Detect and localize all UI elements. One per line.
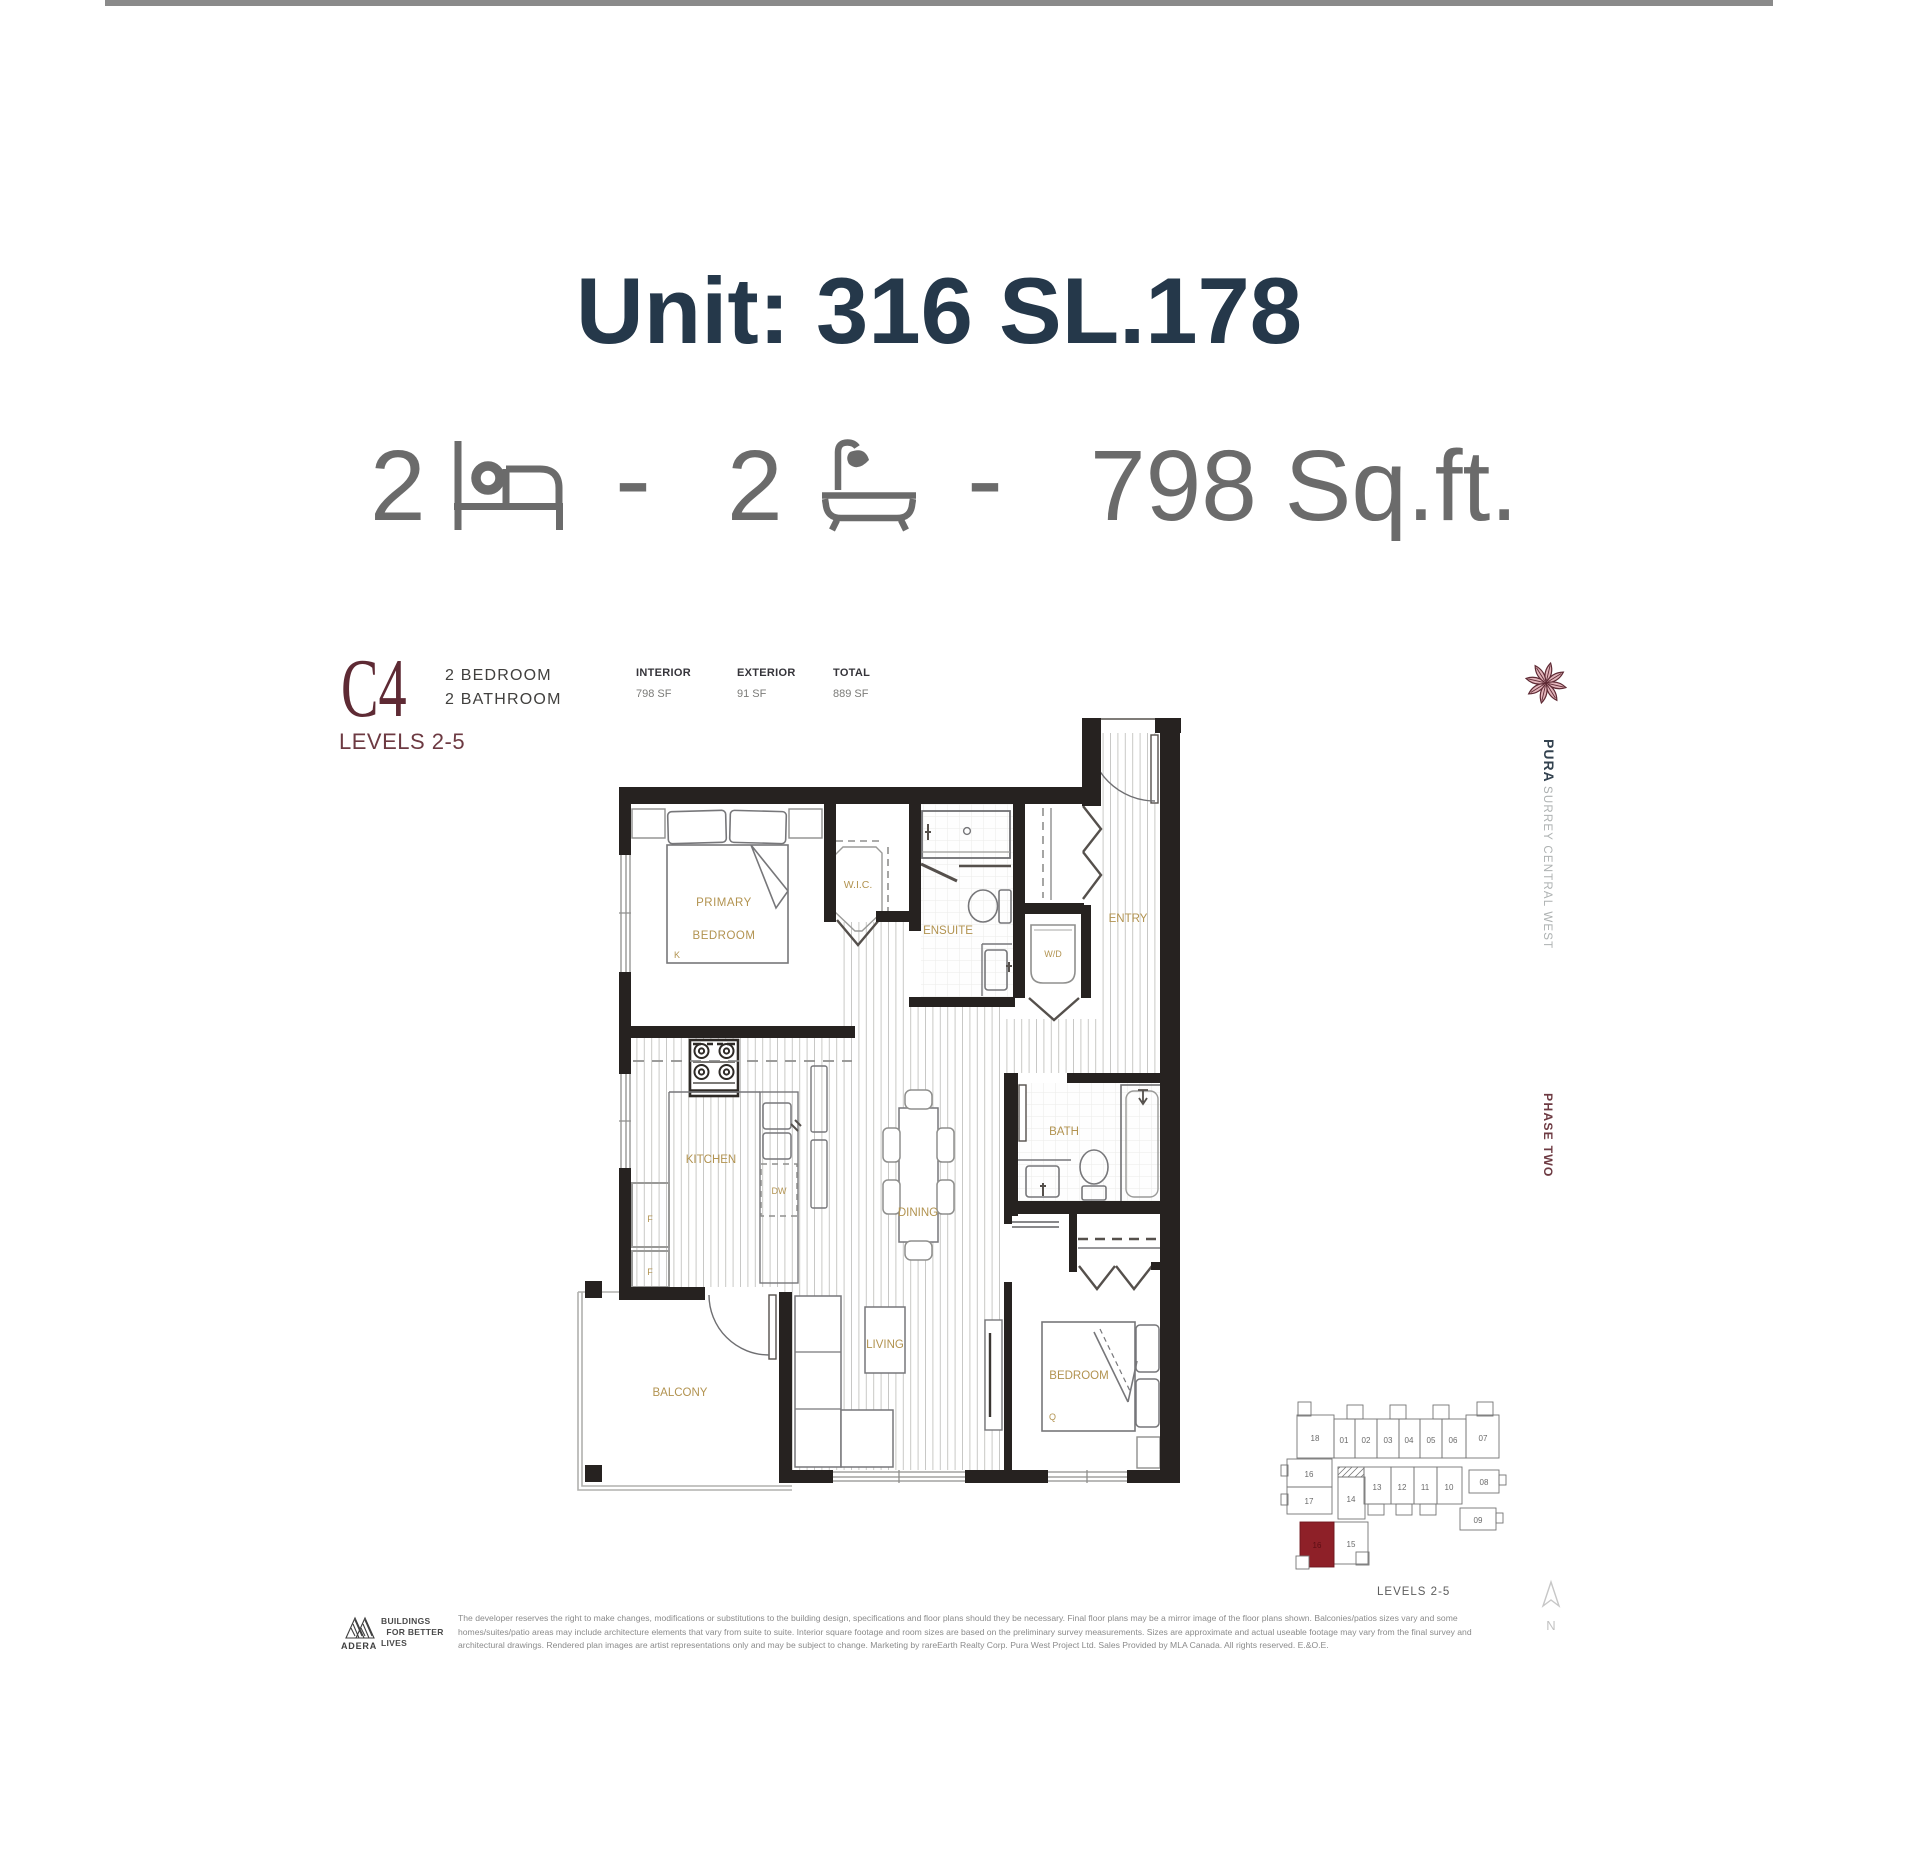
svg-text:04: 04 bbox=[1405, 1436, 1414, 1445]
svg-text:01: 01 bbox=[1340, 1436, 1349, 1445]
svg-text:DW: DW bbox=[772, 1186, 787, 1196]
svg-text:18: 18 bbox=[1311, 1434, 1320, 1443]
svg-text:16: 16 bbox=[1313, 1541, 1322, 1550]
svg-text:ENSUITE: ENSUITE bbox=[923, 925, 973, 937]
svg-text:N: N bbox=[1546, 1618, 1555, 1633]
svg-text:09: 09 bbox=[1474, 1516, 1483, 1525]
svg-text:PRIMARY: PRIMARY bbox=[696, 897, 752, 909]
svg-text:PHASE TWO: PHASE TWO bbox=[1541, 1093, 1555, 1178]
svg-text:03: 03 bbox=[1384, 1436, 1393, 1445]
svg-text:W/D: W/D bbox=[1044, 949, 1062, 959]
svg-text:08: 08 bbox=[1480, 1478, 1489, 1487]
svg-text:13: 13 bbox=[1373, 1483, 1382, 1492]
svg-text:15: 15 bbox=[1347, 1540, 1356, 1549]
svg-text:ENTRY: ENTRY bbox=[1109, 913, 1148, 925]
svg-text:BEDROOM: BEDROOM bbox=[1049, 1370, 1108, 1382]
svg-text:16: 16 bbox=[1305, 1470, 1314, 1479]
svg-text:12: 12 bbox=[1398, 1483, 1407, 1492]
svg-text:Q: Q bbox=[1049, 1412, 1056, 1422]
svg-text:BALCONY: BALCONY bbox=[653, 1387, 708, 1399]
svg-text:PURA: PURA bbox=[1541, 739, 1557, 783]
svg-text:F: F bbox=[647, 1267, 653, 1277]
svg-text:ADERA: ADERA bbox=[341, 1641, 377, 1651]
svg-text:07: 07 bbox=[1479, 1434, 1488, 1443]
svg-text:14: 14 bbox=[1347, 1495, 1356, 1504]
svg-text:LIVING: LIVING bbox=[866, 1339, 904, 1351]
svg-text:02: 02 bbox=[1362, 1436, 1371, 1445]
svg-text:BEDROOM: BEDROOM bbox=[693, 930, 756, 942]
svg-text:BATH: BATH bbox=[1049, 1126, 1079, 1138]
svg-text:F: F bbox=[647, 1214, 653, 1224]
svg-text:K: K bbox=[674, 950, 680, 960]
svg-text:SURREY CENTRAL WEST: SURREY CENTRAL WEST bbox=[1541, 786, 1553, 949]
svg-text:17: 17 bbox=[1305, 1497, 1314, 1506]
svg-text:W.I.C.: W.I.C. bbox=[844, 879, 873, 891]
svg-text:11: 11 bbox=[1421, 1483, 1430, 1492]
svg-text:05: 05 bbox=[1427, 1436, 1436, 1445]
svg-text:KITCHEN: KITCHEN bbox=[686, 1154, 736, 1166]
svg-text:06: 06 bbox=[1449, 1436, 1458, 1445]
svg-text:10: 10 bbox=[1445, 1483, 1454, 1492]
svg-text:DINING: DINING bbox=[898, 1207, 938, 1219]
